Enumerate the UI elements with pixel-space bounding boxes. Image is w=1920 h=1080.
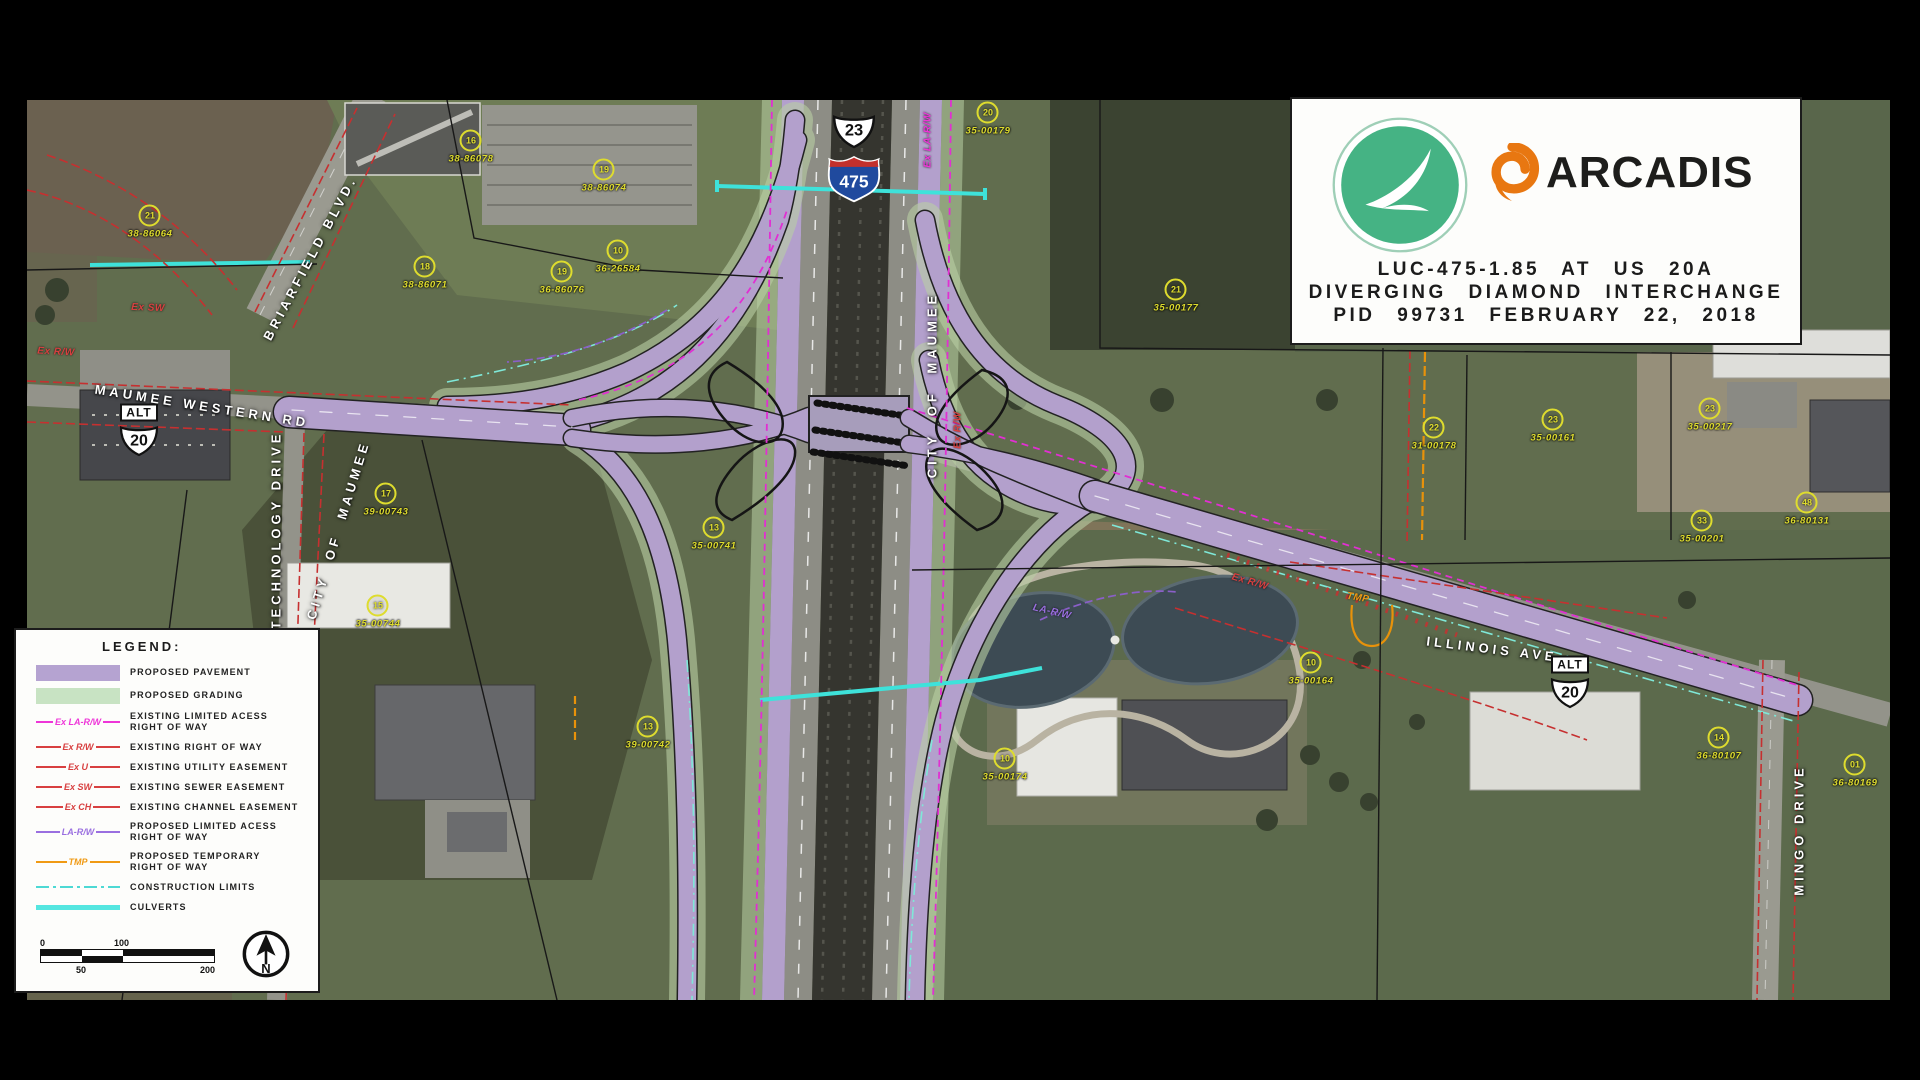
parcel-number: 33 — [1697, 516, 1707, 526]
parcel-number-circle: 17 — [375, 483, 397, 505]
alt-banner: ALT — [120, 404, 157, 422]
legend-label: EXISTING LIMITED ACESSRIGHT OF WAY — [130, 711, 268, 733]
parcel-number: 22 — [1429, 423, 1439, 433]
row-note: Ex LA-R/W — [923, 112, 934, 168]
legend-item-construction-limits: CONSTRUCTION LIMITS — [36, 877, 310, 897]
legend-label: EXISTING RIGHT OF WAY — [130, 742, 263, 753]
line-sample: Ex U — [36, 762, 120, 772]
parcel-id: 38-86078 — [449, 154, 494, 165]
legend-label: PROPOSED TEMPORARYRIGHT OF WAY — [130, 851, 260, 873]
legend-item-proposed-pavement: PROPOSED PAVEMENT — [36, 661, 310, 684]
parcel-number-circle: 18 — [414, 256, 436, 278]
parcel-id: 36-80131 — [1785, 516, 1830, 527]
parcel-marker: 1035-00164 — [1289, 652, 1334, 687]
scale-0: 0 — [40, 938, 45, 948]
legend-item-culverts: CULVERTS — [36, 897, 310, 917]
parcel-number: 01 — [1850, 760, 1860, 770]
line-sample: Ex SW — [36, 782, 120, 792]
parcel-marker: 1739-00743 — [364, 483, 409, 518]
parcel-id: 35-00201 — [1680, 534, 1725, 545]
legend-item-existing-la-rw: Ex LA-R/W EXISTING LIMITED ACESSRIGHT OF… — [36, 707, 310, 737]
parcel-id: 35-00744 — [356, 619, 401, 630]
parcel-number: 20 — [983, 108, 993, 118]
us-23-shield: 23 — [832, 111, 876, 149]
parcel-number: 19 — [599, 165, 609, 175]
interstate-shield-icon: 475 — [826, 154, 882, 203]
parcel-number-circle: 22 — [1423, 417, 1445, 439]
parcel-number-circle: 10 — [994, 748, 1016, 770]
parcel-id: 38-86074 — [582, 183, 627, 194]
parcel-number: 21 — [145, 211, 155, 221]
parcel-id: 31-00178 — [1412, 441, 1457, 452]
parcel-id: 35-00741 — [692, 541, 737, 552]
parcel-number-circle: 33 — [1691, 510, 1713, 532]
scale-50: 50 — [76, 965, 86, 975]
parcel-marker: 2135-00177 — [1154, 279, 1199, 314]
alt-banner: ALT — [1551, 656, 1588, 674]
legend-label: EXISTING UTILITY EASEMENT — [130, 762, 288, 773]
row-note: Ex R/W — [37, 346, 75, 359]
legend-item-proposed-la-rw: LA-R/W PROPOSED LIMITED ACESSRIGHT OF WA… — [36, 817, 310, 847]
legend-item-existing-sewer: Ex SW EXISTING SEWER EASEMENT — [36, 777, 310, 797]
arcadis-logo: ARCADIS — [1484, 143, 1753, 203]
parcel-number-circle: 10 — [1300, 652, 1322, 674]
line-sample: TMP — [36, 857, 120, 867]
parcel-number: 10 — [613, 246, 623, 256]
parcel-marker: 0136-80169 — [1833, 754, 1878, 789]
parcel-number-circle: 15 — [367, 595, 389, 617]
arcadis-symbol-icon — [1484, 143, 1540, 203]
parcel-number-circle: 13 — [637, 716, 659, 738]
parcel-number-circle: 14 — [1708, 727, 1730, 749]
parcel-number-circle: 19 — [551, 261, 573, 283]
road-label-mingo-drive: MINGO DRIVE — [1792, 764, 1807, 895]
row-note: Ex SW — [131, 302, 165, 314]
parcel-id: 36-80169 — [1833, 778, 1878, 789]
parcel-number: 13 — [709, 523, 719, 533]
us-route-shield-icon: 20 — [119, 423, 159, 457]
parcel-id: 35-00177 — [1154, 303, 1199, 314]
parcel-number-circle: 19 — [593, 159, 615, 181]
parcel-id: 35-00217 — [1688, 422, 1733, 433]
scale-bar-segments — [40, 949, 215, 963]
parcel-marker: 1339-00742 — [626, 716, 671, 751]
parcel-marker: 1036-26584 — [596, 240, 641, 275]
sample-label: Ex SW — [62, 782, 94, 792]
parcel-number-circle: 23 — [1699, 398, 1721, 420]
title-block: ARCADIS LUC-475-1.85 AT US 20A DIVERGING… — [1290, 97, 1802, 345]
sample-label: Ex LA-R/W — [53, 717, 103, 727]
parcel-marker: 1335-00741 — [692, 517, 737, 552]
parcel-number: 16 — [466, 136, 476, 146]
odot-logo-icon — [1330, 115, 1470, 255]
legend-item-existing-rw: Ex R/W EXISTING RIGHT OF WAY — [36, 737, 310, 757]
legend-panel: LEGEND: PROPOSED PAVEMENT PROPOSED GRADI… — [14, 628, 320, 993]
title-line-2: DIVERGING DIAMOND INTERCHANGE — [1309, 282, 1784, 304]
parcel-id: 36-86076 — [540, 285, 585, 296]
legend-heading: LEGEND: — [102, 639, 318, 654]
parcel-marker: 1938-86074 — [582, 159, 627, 194]
i-475-shield: 475 — [826, 154, 882, 203]
sample-label: Ex R/W — [61, 742, 96, 752]
parcel-number-circle: 23 — [1542, 409, 1564, 431]
parcel-number: 19 — [557, 267, 567, 277]
pavement-swatch — [36, 665, 120, 681]
parcel-number: 23 — [1548, 415, 1558, 425]
line-sample: LA-R/W — [36, 827, 120, 837]
parcel-marker: 1936-86076 — [540, 261, 585, 296]
parcel-id: 39-00742 — [626, 740, 671, 751]
parcel-marker: 1638-86078 — [449, 130, 494, 165]
legend-label: CONSTRUCTION LIMITS — [130, 882, 255, 893]
parcel-number: 14 — [1714, 733, 1724, 743]
parcel-id: 35-00164 — [1289, 676, 1334, 687]
us-route-shield-icon: 23 — [832, 111, 876, 149]
us-20-number: 20 — [130, 433, 148, 450]
parcel-marker: 2035-00179 — [966, 102, 1011, 137]
parcel-number-circle: 13 — [703, 517, 725, 539]
parcel-id: 36-80107 — [1697, 751, 1742, 762]
parcel-marker: 1436-80107 — [1697, 727, 1742, 762]
parcel-number: 18 — [420, 262, 430, 272]
legend-item-existing-utility: Ex U EXISTING UTILITY EASEMENT — [36, 757, 310, 777]
sample-label: TMP — [67, 857, 90, 867]
parcel-id: 36-26584 — [596, 264, 641, 275]
parcel-marker: 4836-80131 — [1785, 492, 1830, 527]
project-title: LUC-475-1.85 AT US 20A DIVERGING DIAMOND… — [1292, 259, 1800, 327]
us-20-number: 20 — [1561, 685, 1579, 702]
parcel-number-circle: 16 — [460, 130, 482, 152]
legend-label: EXISTING CHANNEL EASEMENT — [130, 802, 298, 813]
legend-item-existing-channel: Ex CH EXISTING CHANNEL EASEMENT — [36, 797, 310, 817]
line-sample: Ex CH — [36, 802, 120, 812]
parcel-number-circle: 10 — [607, 240, 629, 262]
parcel-number-circle: 21 — [139, 205, 161, 227]
parcel-id: 38-86071 — [403, 280, 448, 291]
parcel-marker: 1535-00744 — [356, 595, 401, 630]
sample-label: LA-R/W — [60, 827, 97, 837]
parcel-number: 48 — [1802, 498, 1812, 508]
legend-label: PROPOSED PAVEMENT — [130, 667, 251, 678]
i-475-number: 475 — [839, 171, 868, 191]
parcel-marker: 1035-00174 — [983, 748, 1028, 783]
parcel-id: 35-00179 — [966, 126, 1011, 137]
title-line-3: PID 99731 FEBRUARY 22, 2018 — [1333, 305, 1758, 327]
line-sample — [36, 886, 120, 888]
parcel-number: 23 — [1705, 404, 1715, 414]
parcel-marker: 2335-00161 — [1531, 409, 1576, 444]
road-label-city-of-maumee-east: CITY OF MAUMEE — [925, 292, 940, 478]
line-sample: Ex R/W — [36, 742, 120, 752]
north-arrow-icon: N — [240, 928, 292, 980]
plan-sheet: { "title_block": { "agency_logo": "odot-… — [0, 0, 1920, 1080]
road-label-technology-drive: TECHNOLOGY DRIVE — [269, 431, 284, 630]
parcel-marker: 3335-00201 — [1680, 510, 1725, 545]
grading-swatch — [36, 688, 120, 704]
row-note: Ex R/W — [953, 411, 964, 448]
sample-label: Ex U — [66, 762, 90, 772]
legend-item-proposed-grading: PROPOSED GRADING — [36, 684, 310, 707]
parcel-id: 39-00743 — [364, 507, 409, 518]
line-sample: Ex LA-R/W — [36, 717, 120, 727]
alt-us-20-shield-east: ALT 20 — [1550, 656, 1590, 709]
parcel-marker: 2335-00217 — [1688, 398, 1733, 433]
legend-label: PROPOSED LIMITED ACESSRIGHT OF WAY — [130, 821, 277, 843]
parcel-number-circle: 20 — [977, 102, 999, 124]
legend-item-temporary-rw: TMP PROPOSED TEMPORARYRIGHT OF WAY — [36, 847, 310, 877]
us-23-number: 23 — [845, 122, 863, 140]
parcel-marker: 2138-86064 — [128, 205, 173, 240]
us-route-shield-icon: 20 — [1550, 675, 1590, 709]
scale-200: 200 — [200, 965, 215, 975]
line-sample — [36, 905, 120, 910]
title-line-1: LUC-475-1.85 AT US 20A — [1378, 259, 1715, 281]
parcel-number: 10 — [1306, 658, 1316, 668]
parcel-number: 17 — [381, 489, 391, 499]
parcel-number-circle: 48 — [1796, 492, 1818, 514]
parcel-number-circle: 01 — [1844, 754, 1866, 776]
parcel-id: 38-86064 — [128, 229, 173, 240]
parcel-number: 15 — [373, 601, 383, 611]
parcel-id: 35-00161 — [1531, 433, 1576, 444]
parcel-number: 10 — [1000, 754, 1010, 764]
parcel-id: 35-00174 — [983, 772, 1028, 783]
alt-us-20-shield-west: ALT 20 — [119, 404, 159, 457]
parcel-number: 21 — [1171, 285, 1181, 295]
legend-label: EXISTING SEWER EASEMENT — [130, 782, 285, 793]
arcadis-wordmark: ARCADIS — [1546, 148, 1753, 198]
parcel-number: 13 — [643, 722, 653, 732]
legend-label: CULVERTS — [130, 902, 187, 913]
parcel-marker: 2231-00178 — [1412, 417, 1457, 452]
parcel-marker: 1838-86071 — [403, 256, 448, 291]
legend-label: PROPOSED GRADING — [130, 690, 244, 701]
north-letter: N — [261, 961, 270, 976]
sample-label: Ex CH — [63, 802, 94, 812]
scale-100: 100 — [114, 938, 129, 948]
parcel-number-circle: 21 — [1165, 279, 1187, 301]
